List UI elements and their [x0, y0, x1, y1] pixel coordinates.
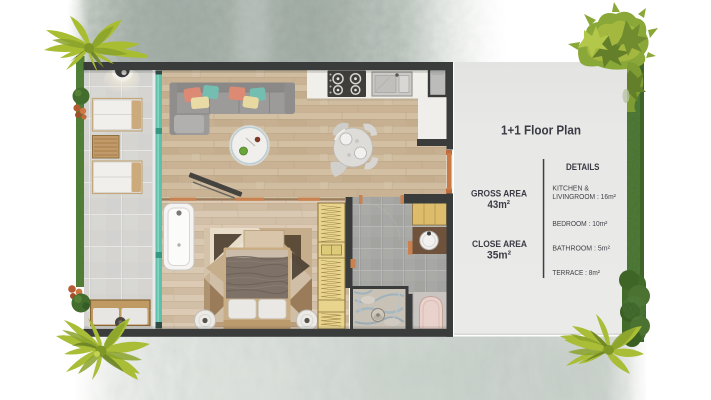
svg-text:35m²: 35m² [487, 250, 511, 262]
svg-text:GROSS AREA: GROSS AREA [471, 188, 527, 199]
svg-text:BATHROOM : 5m²: BATHROOM : 5m² [552, 244, 610, 253]
svg-text:43m²: 43m² [488, 199, 511, 211]
svg-text:LIVINGROOM : 16m²: LIVINGROOM : 16m² [552, 192, 616, 201]
svg-text:DETAILS: DETAILS [566, 162, 600, 173]
svg-text:TERRACE : 8m²: TERRACE : 8m² [552, 268, 600, 277]
svg-text:BEDROOM : 10m²: BEDROOM : 10m² [552, 219, 607, 228]
svg-text:1+1 Floor Plan: 1+1 Floor Plan [501, 124, 581, 138]
